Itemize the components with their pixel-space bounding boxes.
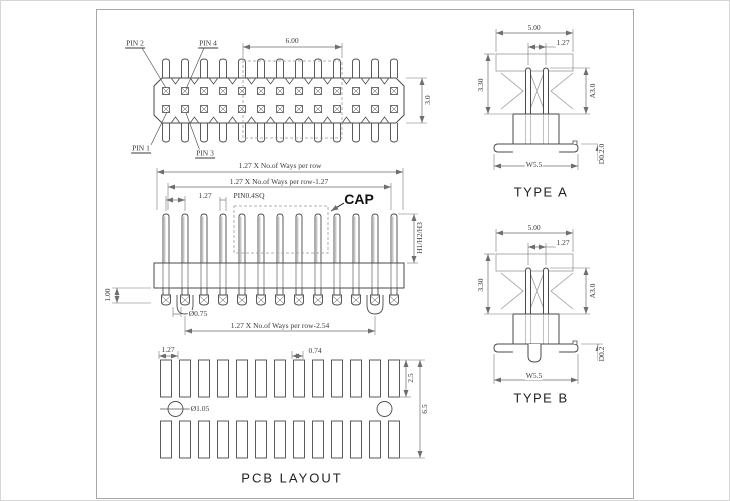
tb-leads [494, 341, 578, 362]
type-a-title: TYPE A [514, 185, 569, 200]
fv-dim-pitch: 1.27 [197, 192, 212, 200]
pin3-label: PIN 3 [195, 150, 215, 159]
tv-bottom-stubs [163, 123, 398, 142]
pcb-pads-top [161, 360, 400, 397]
tb-dim-lead-thk: D0.2 [598, 346, 606, 363]
ta-dim-pitch: 1.27 [555, 39, 570, 47]
tb-insulator-detail [501, 273, 573, 309]
tb-center-peg [528, 344, 541, 362]
tb-dim-height-right: A3.0 [589, 283, 597, 300]
type-b-title: TYPE B [513, 391, 568, 406]
cap-label: CAP [344, 191, 374, 207]
pcb-pads-bottom [161, 421, 400, 458]
pin4-label: PIN 4 [198, 40, 218, 49]
pcb-dim-row-span: 6.5 [421, 403, 429, 414]
fv-dim-row-minus-254: 1.27 X No.of Ways per row-2.54 [230, 322, 330, 330]
fv-pins [163, 214, 397, 263]
type-b-drawing [484, 229, 603, 384]
ta-insulator-detail [501, 73, 573, 109]
fv-dim-heights: H1/H2/H3 [416, 221, 424, 255]
tv-dim-body-height: 3.0 [424, 94, 432, 105]
pcb-dim-hole-dia: Ø1.05 [190, 405, 211, 413]
pcb-dim-pad-width: 0.74 [307, 347, 322, 355]
fv-dim-pin-dia: Ø0.75 [188, 310, 209, 318]
pcb-hole-right [377, 402, 392, 417]
tb-dim-height-left: 3.30 [477, 277, 485, 292]
fv-dim-row-total: 1.27 X No.of Ways per row [238, 162, 323, 170]
pcb-dim-pad-height: 2.5 [407, 372, 415, 383]
ta-dim-lead-span: W5.5 [525, 161, 543, 169]
top-view-drawing [142, 43, 427, 151]
tv-dim-cap-width: 6.00 [284, 37, 299, 45]
cap-arrow [331, 203, 344, 211]
datasheet-drawing: PIN 2 PIN 4 PIN 1 PIN 3 6.00 3.0 1.27 X … [0, 0, 730, 501]
tb-dim-lead-span: W5.5 [525, 372, 543, 380]
type-a-drawing [484, 29, 603, 170]
fv-dim-row-minus-127: 1.27 X No.of Ways per row-1.27 [229, 178, 329, 186]
ta-dim-width: 5.00 [526, 24, 541, 32]
ta-dim-height-left: 3.30 [477, 77, 485, 92]
pin2-label: PIN 2 [125, 40, 145, 49]
linework-svg [1, 1, 730, 501]
fv-pin-size-label: PIN0.4SQ [232, 192, 265, 200]
fv-dim-standoff: 1.00 [104, 287, 112, 302]
tb-dim-pitch: 1.27 [555, 239, 570, 247]
pin1-label: PIN 1 [131, 145, 151, 154]
ta-dim-lead-thk: D0.2.0 [598, 143, 606, 165]
ta-dim-height-right: A3.0 [589, 83, 597, 100]
tb-dim-width: 5.00 [526, 224, 541, 232]
pcb-layout-title: PCB LAYOUT [241, 471, 342, 486]
pcb-dim-pitch: 1.27 [160, 346, 175, 354]
